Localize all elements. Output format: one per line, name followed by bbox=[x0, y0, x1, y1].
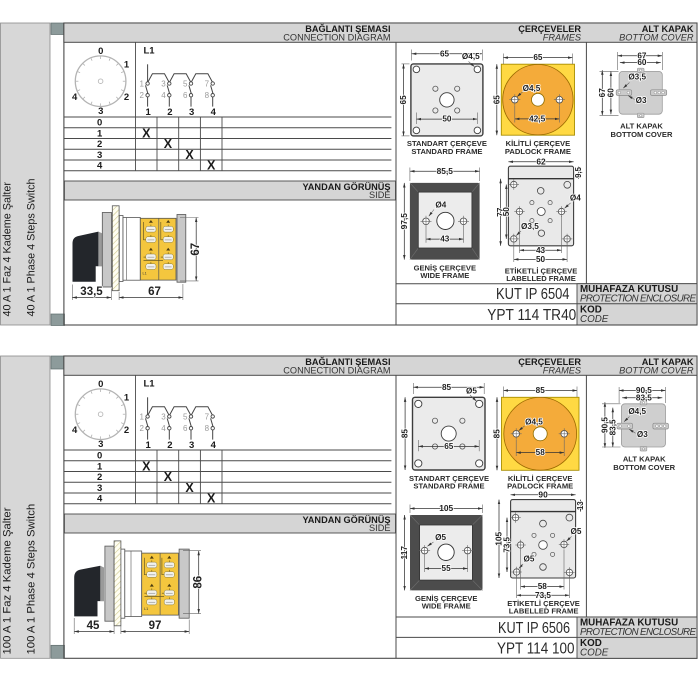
svg-text:4: 4 bbox=[97, 494, 103, 505]
svg-text:Ø3: Ø3 bbox=[637, 430, 648, 439]
svg-text:5: 5 bbox=[183, 79, 188, 88]
svg-text:Ø5: Ø5 bbox=[466, 386, 477, 395]
svg-text:42,5: 42,5 bbox=[529, 114, 546, 124]
svg-text:3: 3 bbox=[97, 150, 102, 161]
svg-text:L1: L1 bbox=[144, 46, 156, 57]
svg-text:65: 65 bbox=[399, 95, 408, 105]
svg-text:8: 8 bbox=[205, 91, 210, 100]
svg-text:58: 58 bbox=[536, 448, 546, 457]
svg-text:62: 62 bbox=[536, 156, 546, 166]
svg-text:97: 97 bbox=[149, 620, 162, 632]
svg-text:4: 4 bbox=[72, 92, 78, 103]
svg-text:STANDARD FRAME: STANDARD FRAME bbox=[413, 482, 484, 491]
svg-text:2: 2 bbox=[97, 472, 102, 483]
svg-text:83,5: 83,5 bbox=[608, 419, 617, 435]
svg-text:8: 8 bbox=[205, 424, 210, 433]
svg-text:ALT KAPAK: ALT KAPAK bbox=[620, 122, 663, 131]
svg-text:50: 50 bbox=[442, 115, 452, 124]
svg-text:X: X bbox=[207, 492, 216, 506]
svg-text:85: 85 bbox=[536, 386, 546, 395]
svg-text:PADLOCK FRAME: PADLOCK FRAME bbox=[505, 147, 571, 156]
svg-text:2: 2 bbox=[140, 91, 145, 100]
svg-text:60: 60 bbox=[607, 88, 616, 98]
svg-text:CONNECTION DIAGRAM: CONNECTION DIAGRAM bbox=[283, 365, 390, 375]
svg-text:1: 1 bbox=[146, 107, 152, 118]
svg-text:2: 2 bbox=[97, 139, 102, 150]
svg-text:Ø4,5: Ø4,5 bbox=[525, 417, 543, 426]
svg-text:65: 65 bbox=[492, 95, 501, 105]
svg-text:3: 3 bbox=[161, 412, 166, 421]
svg-text:BOTTOM COVER: BOTTOM COVER bbox=[611, 130, 673, 139]
svg-text:Ø4,5: Ø4,5 bbox=[523, 84, 541, 93]
svg-text:60: 60 bbox=[637, 58, 647, 67]
svg-text:4: 4 bbox=[211, 107, 217, 118]
svg-text:X: X bbox=[142, 126, 151, 140]
svg-text:83,5: 83,5 bbox=[636, 393, 652, 402]
svg-text:3: 3 bbox=[189, 107, 194, 118]
svg-text:2: 2 bbox=[124, 92, 129, 103]
svg-text:X: X bbox=[185, 148, 194, 162]
svg-text:CODE: CODE bbox=[580, 314, 609, 325]
svg-text:Ø4,5: Ø4,5 bbox=[628, 407, 646, 416]
svg-text:BOTTOM COVER: BOTTOM COVER bbox=[613, 463, 675, 472]
svg-text:L1: L1 bbox=[143, 272, 147, 276]
svg-text:100 A 1 Phase 4 Steps Switch: 100 A 1 Phase 4 Steps Switch bbox=[25, 504, 37, 655]
svg-text:85: 85 bbox=[401, 429, 410, 439]
svg-text:X: X bbox=[207, 159, 216, 173]
svg-text:Ø4: Ø4 bbox=[570, 194, 581, 203]
svg-text:50: 50 bbox=[536, 255, 546, 264]
svg-text:Ø3,5: Ø3,5 bbox=[521, 222, 539, 231]
svg-text:1: 1 bbox=[140, 79, 145, 88]
svg-text:L1: L1 bbox=[144, 607, 148, 611]
svg-text:Ø3,5: Ø3,5 bbox=[628, 73, 646, 82]
svg-text:6: 6 bbox=[183, 91, 188, 100]
svg-text:2: 2 bbox=[140, 424, 145, 433]
svg-text:WIDE FRAME: WIDE FRAME bbox=[420, 271, 469, 280]
svg-text:YPT 114 TR40: YPT 114 TR40 bbox=[487, 307, 576, 324]
svg-text:3: 3 bbox=[98, 106, 103, 117]
svg-text:43: 43 bbox=[440, 235, 450, 244]
svg-text:33,5: 33,5 bbox=[80, 286, 103, 298]
svg-text:9,5: 9,5 bbox=[574, 166, 583, 178]
svg-text:FRAMES: FRAMES bbox=[543, 365, 582, 375]
svg-text:0: 0 bbox=[97, 118, 102, 129]
svg-text:85: 85 bbox=[442, 383, 452, 392]
svg-text:STANDARD FRAME: STANDARD FRAME bbox=[411, 147, 482, 156]
svg-text:Ø5: Ø5 bbox=[524, 555, 535, 564]
svg-text:97,5: 97,5 bbox=[399, 213, 409, 230]
svg-text:BOTTOM COVER: BOTTOM COVER bbox=[619, 365, 694, 375]
svg-text:CODE: CODE bbox=[580, 647, 609, 658]
svg-text:X: X bbox=[164, 137, 173, 151]
svg-text:86: 86 bbox=[192, 576, 204, 589]
svg-text:6: 6 bbox=[183, 424, 188, 433]
svg-text:SIDE: SIDE bbox=[369, 190, 390, 200]
svg-text:1: 1 bbox=[97, 461, 103, 472]
svg-text:FRAMES: FRAMES bbox=[543, 32, 582, 42]
svg-text:KUT IP 6506: KUT IP 6506 bbox=[498, 620, 570, 637]
svg-text:58: 58 bbox=[538, 582, 548, 591]
svg-text:7: 7 bbox=[205, 412, 210, 421]
svg-text:X: X bbox=[164, 470, 173, 484]
svg-text:117: 117 bbox=[399, 546, 409, 560]
svg-text:YPT 114 100: YPT 114 100 bbox=[497, 641, 575, 658]
svg-text:73,5: 73,5 bbox=[503, 536, 512, 552]
svg-text:105: 105 bbox=[439, 503, 453, 513]
svg-text:CONNECTION DIAGRAM: CONNECTION DIAGRAM bbox=[283, 32, 390, 42]
svg-text:85,5: 85,5 bbox=[437, 166, 454, 176]
svg-text:ALT KAPAK: ALT KAPAK bbox=[623, 454, 666, 463]
svg-text:65: 65 bbox=[440, 49, 450, 58]
svg-text:67: 67 bbox=[190, 243, 202, 256]
svg-text:40 A 1 Faz 4 Kademe Şalter: 40 A 1 Faz 4 Kademe Şalter bbox=[1, 182, 13, 317]
svg-text:67: 67 bbox=[148, 286, 161, 298]
svg-text:2: 2 bbox=[167, 107, 172, 118]
svg-text:65: 65 bbox=[533, 53, 543, 62]
svg-text:KUT IP 6504: KUT IP 6504 bbox=[496, 286, 570, 303]
svg-text:LABELLED FRAME: LABELLED FRAME bbox=[506, 274, 576, 283]
svg-text:LABELLED FRAME: LABELLED FRAME bbox=[509, 607, 579, 616]
svg-text:3: 3 bbox=[161, 79, 166, 88]
svg-text:50: 50 bbox=[502, 207, 511, 217]
svg-text:43: 43 bbox=[536, 246, 546, 255]
svg-text:Ø5: Ø5 bbox=[571, 527, 582, 536]
svg-text:3: 3 bbox=[98, 439, 103, 450]
svg-text:0: 0 bbox=[98, 46, 103, 57]
svg-text:0: 0 bbox=[98, 379, 103, 390]
svg-text:4: 4 bbox=[161, 424, 166, 433]
svg-text:85: 85 bbox=[493, 429, 502, 439]
svg-text:1: 1 bbox=[124, 393, 130, 404]
svg-text:1: 1 bbox=[124, 60, 130, 71]
svg-text:2: 2 bbox=[124, 425, 129, 436]
svg-text:55: 55 bbox=[442, 564, 452, 573]
svg-text:45: 45 bbox=[87, 620, 100, 632]
svg-text:4: 4 bbox=[161, 91, 166, 100]
svg-text:WIDE FRAME: WIDE FRAME bbox=[422, 602, 471, 611]
svg-text:3: 3 bbox=[97, 483, 102, 494]
svg-text:7: 7 bbox=[205, 79, 210, 88]
svg-text:X: X bbox=[185, 481, 194, 495]
svg-text:BOTTOM COVER: BOTTOM COVER bbox=[619, 32, 694, 42]
svg-text:40 A 1 Phase 4 Steps Switch: 40 A 1 Phase 4 Steps Switch bbox=[25, 178, 37, 316]
svg-text:90: 90 bbox=[538, 489, 548, 499]
svg-text:Ø4,5: Ø4,5 bbox=[462, 52, 480, 61]
svg-text:PROTECTION ENCLOSURE: PROTECTION ENCLOSURE bbox=[580, 627, 696, 638]
svg-text:1: 1 bbox=[97, 129, 103, 140]
svg-text:5: 5 bbox=[183, 412, 188, 421]
svg-text:Ø4: Ø4 bbox=[435, 200, 446, 209]
svg-text:4: 4 bbox=[97, 161, 103, 172]
svg-text:PROTECTION ENCLOSURE: PROTECTION ENCLOSURE bbox=[580, 294, 696, 305]
svg-text:4: 4 bbox=[72, 425, 78, 436]
svg-text:1: 1 bbox=[140, 412, 145, 421]
svg-text:13: 13 bbox=[576, 501, 585, 510]
svg-text:L1: L1 bbox=[144, 379, 156, 390]
svg-text:0: 0 bbox=[97, 451, 102, 462]
svg-text:100 A 1 Faz 4 Kademe Şalter: 100 A 1 Faz 4 Kademe Şalter bbox=[1, 507, 13, 654]
svg-text:Ø5: Ø5 bbox=[435, 533, 446, 542]
svg-text:Ø3: Ø3 bbox=[636, 96, 647, 105]
svg-text:SIDE: SIDE bbox=[369, 523, 390, 533]
svg-text:X: X bbox=[142, 459, 151, 473]
svg-text:65: 65 bbox=[444, 442, 454, 451]
